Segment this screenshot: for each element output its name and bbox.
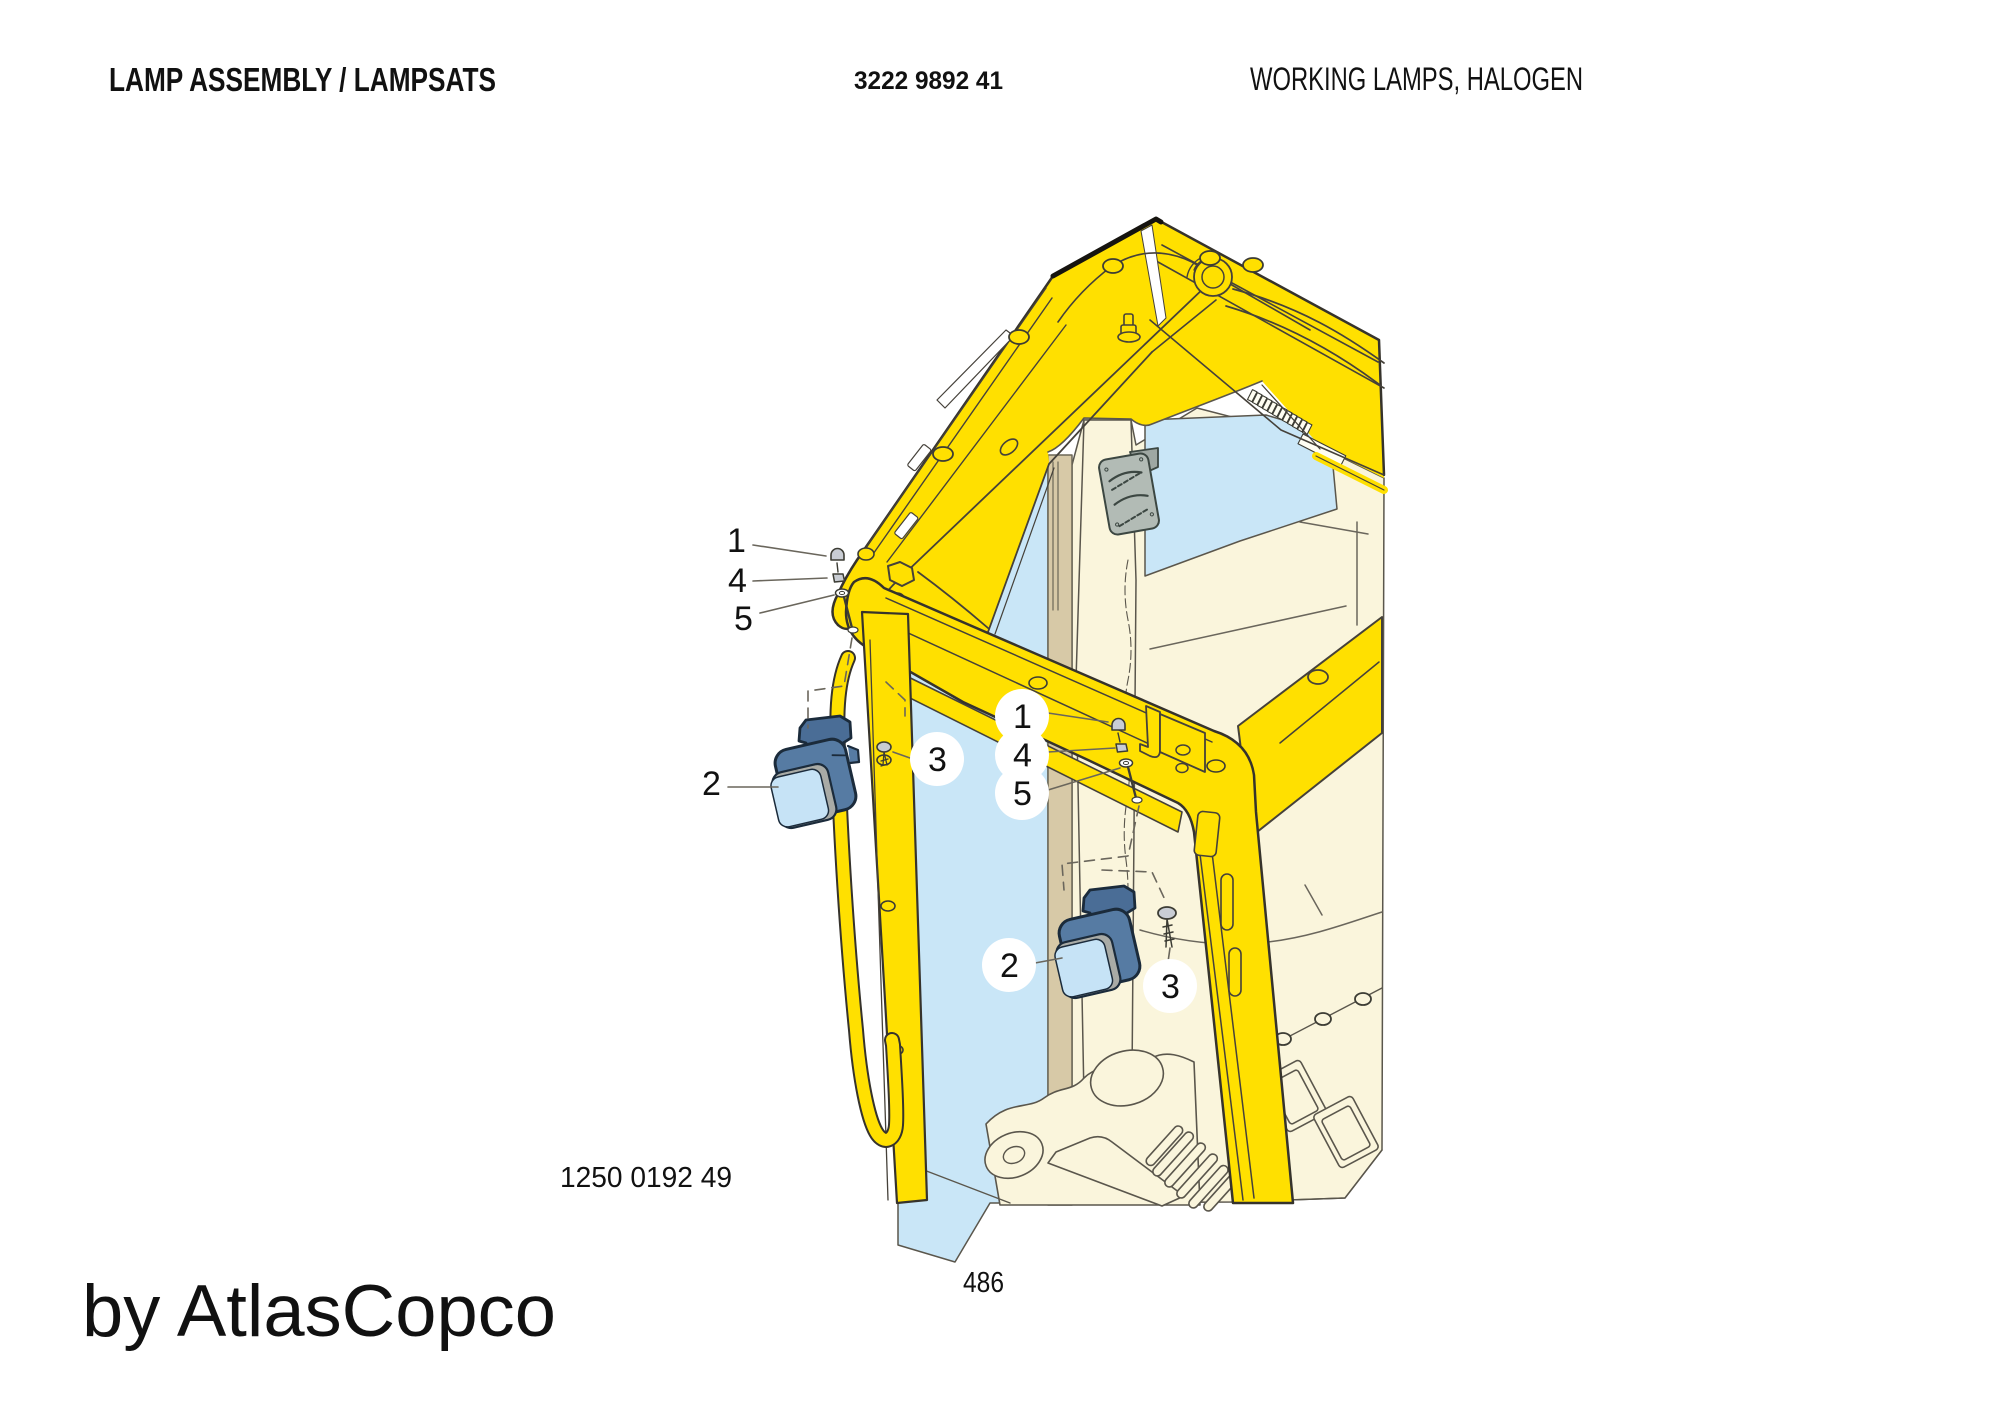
svg-text:1: 1 xyxy=(727,522,746,560)
svg-text:1250 0192 49: 1250 0192 49 xyxy=(560,1162,732,1194)
svg-text:2: 2 xyxy=(702,765,721,803)
svg-text:486: 486 xyxy=(963,1267,1004,1299)
svg-text:3: 3 xyxy=(928,741,947,779)
svg-text:2: 2 xyxy=(1000,947,1019,985)
svg-text:LAMP ASSEMBLY / LAMPSATS: LAMP ASSEMBLY / LAMPSATS xyxy=(109,61,496,98)
svg-text:WORKING LAMPS, HALOGEN: WORKING LAMPS, HALOGEN xyxy=(1250,61,1583,97)
svg-text:5: 5 xyxy=(1013,775,1032,813)
svg-text:4: 4 xyxy=(728,562,747,600)
svg-text:3: 3 xyxy=(1161,968,1180,1006)
svg-text:3222 9892 41: 3222 9892 41 xyxy=(854,67,1003,95)
svg-text:5: 5 xyxy=(734,600,753,638)
svg-text:by AtlasCopco: by AtlasCopco xyxy=(82,1271,556,1352)
